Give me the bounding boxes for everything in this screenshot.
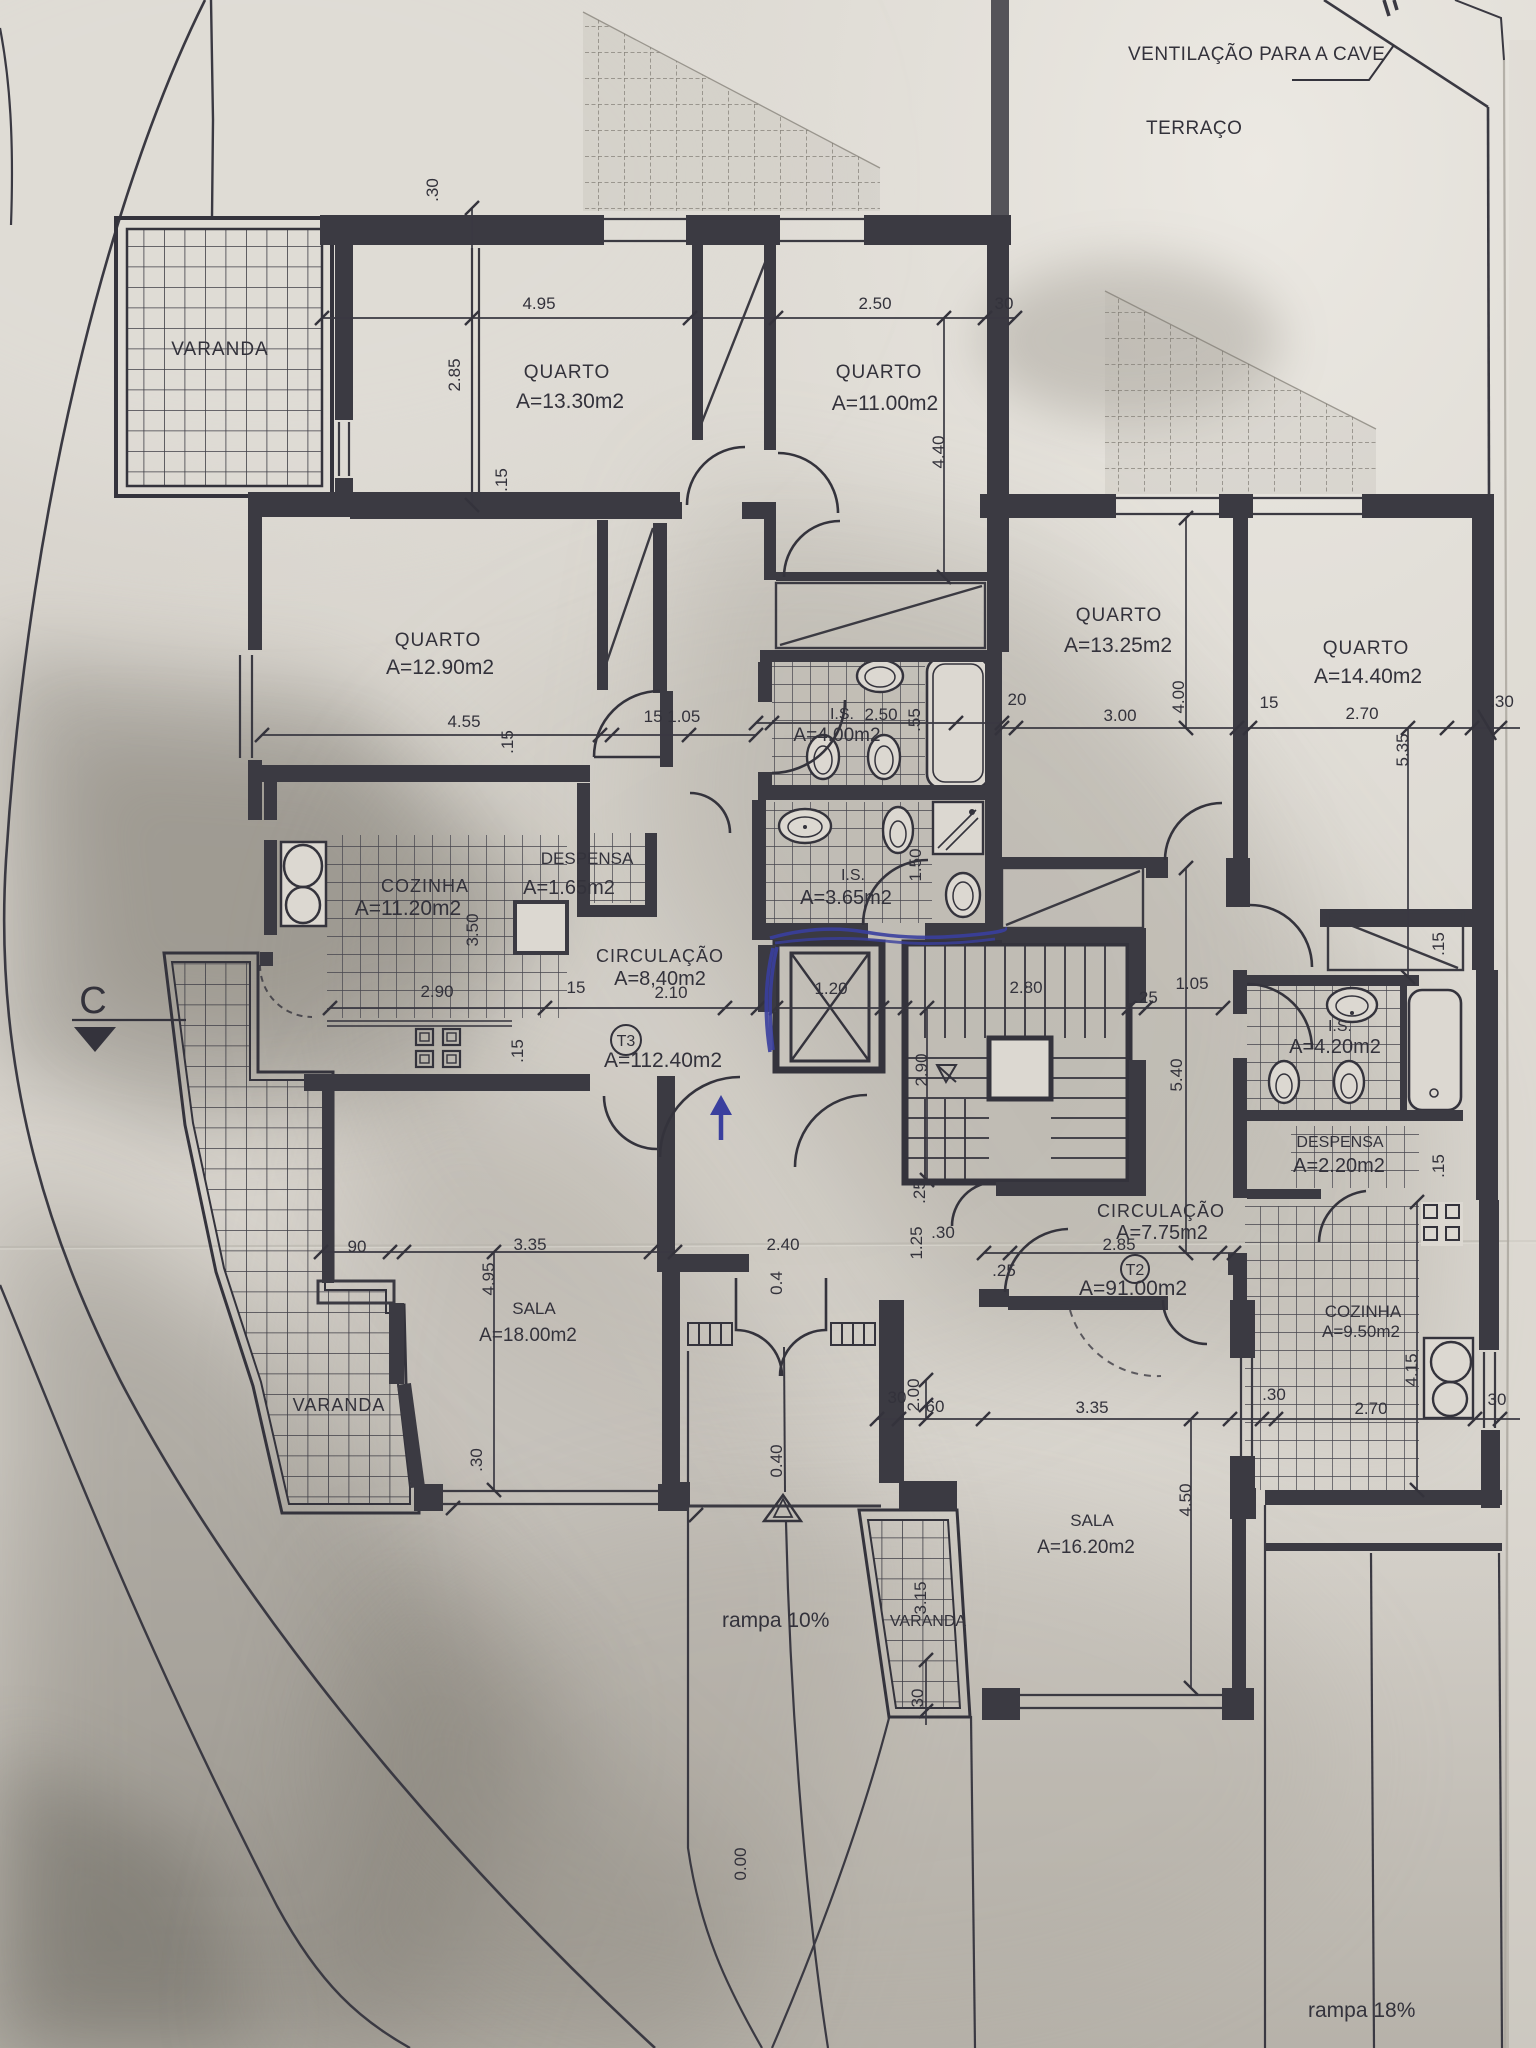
svg-text:2.40: 2.40 (766, 1235, 799, 1254)
svg-text:A=4.00m2: A=4.00m2 (793, 725, 880, 746)
svg-text:3.35: 3.35 (513, 1235, 546, 1254)
svg-text:0.00: 0.00 (731, 1847, 750, 1880)
svg-text:VARANDA: VARANDA (171, 339, 268, 360)
svg-text:I.S.: I.S. (830, 706, 854, 723)
svg-text:4.95: 4.95 (479, 1262, 498, 1295)
svg-text:20: 20 (1008, 690, 1027, 709)
svg-text:4.15: 4.15 (1402, 1353, 1421, 1386)
svg-text:1.25: 1.25 (907, 1226, 926, 1259)
svg-text:A=11.00m2: A=11.00m2 (832, 392, 938, 415)
svg-text:VARANDA: VARANDA (890, 1613, 966, 1630)
svg-text:.30: .30 (1262, 1385, 1286, 1404)
svg-text:3.35: 3.35 (1075, 1398, 1108, 1417)
svg-text:A=9.50m2: A=9.50m2 (1322, 1322, 1400, 1341)
svg-text:4.55: 4.55 (447, 712, 480, 731)
svg-text:15: 15 (567, 978, 586, 997)
svg-text:4.00: 4.00 (1169, 680, 1188, 713)
svg-text:.30: .30 (467, 1448, 486, 1472)
svg-text:DESPENSA: DESPENSA (541, 849, 634, 868)
svg-text:5.35: 5.35 (1393, 733, 1412, 766)
svg-text:15: 15 (1260, 693, 1279, 712)
svg-text:A=11.20m2: A=11.20m2 (355, 897, 461, 920)
svg-text:VENTILAÇÃO PARA A CAVE: VENTILAÇÃO PARA A CAVE (1128, 43, 1385, 65)
svg-text:1.05: 1.05 (1175, 974, 1208, 993)
svg-text:DESPENSA: DESPENSA (1296, 1134, 1383, 1151)
svg-text:.25: .25 (992, 1261, 1016, 1280)
svg-text:.15: .15 (492, 468, 511, 492)
svg-text:2.80: 2.80 (1009, 978, 1042, 997)
svg-text:1.50: 1.50 (906, 848, 925, 881)
svg-text:60: 60 (926, 1397, 945, 1416)
svg-text:C: C (79, 980, 106, 1022)
svg-text:QUARTO: QUARTO (1323, 638, 1410, 659)
svg-text:3.15: 3.15 (911, 1581, 930, 1614)
svg-text:2.85: 2.85 (445, 358, 464, 391)
svg-text:CIRCULAÇÃO: CIRCULAÇÃO (596, 945, 724, 966)
svg-text:T3: T3 (617, 1033, 636, 1050)
svg-text:A=18.00m2: A=18.00m2 (479, 1325, 577, 1346)
svg-text:2.70: 2.70 (1354, 1399, 1387, 1418)
svg-text:.15: .15 (1429, 1154, 1448, 1178)
svg-text:rampa 18%: rampa 18% (1308, 1999, 1415, 2022)
svg-text:A=91.00m2: A=91.00m2 (1079, 1277, 1187, 1300)
svg-text:TERRAÇO: TERRAÇO (1146, 118, 1242, 139)
svg-text:.30: .30 (931, 1223, 955, 1242)
svg-text:QUARTO: QUARTO (524, 362, 611, 383)
svg-text:QUARTO: QUARTO (395, 630, 482, 651)
svg-text:15 1.05: 15 1.05 (644, 707, 701, 726)
svg-text:A=112.40m2: A=112.40m2 (604, 1049, 722, 1072)
svg-text:4.40: 4.40 (929, 435, 948, 468)
svg-text:2.85: 2.85 (1102, 1235, 1135, 1254)
svg-text:I.S.: I.S. (841, 867, 865, 884)
svg-text:1.20: 1.20 (814, 979, 847, 998)
svg-text:.15: .15 (508, 1039, 527, 1063)
svg-text:QUARTO: QUARTO (836, 362, 923, 383)
svg-text:5.40: 5.40 (1167, 1058, 1186, 1091)
svg-text:A=4.20m2: A=4.20m2 (1289, 1036, 1381, 1058)
svg-text:VARANDA: VARANDA (293, 1395, 386, 1415)
svg-text:30: 30 (995, 294, 1014, 313)
svg-text:rampa 10%: rampa 10% (722, 1609, 829, 1632)
svg-text:.30: .30 (423, 178, 442, 202)
svg-text:A=12.90m2: A=12.90m2 (386, 656, 494, 679)
svg-text:0.4: 0.4 (767, 1271, 786, 1295)
svg-text:30: 30 (1488, 1390, 1507, 1409)
svg-text:2.10: 2.10 (654, 983, 687, 1002)
svg-text:A=13.25m2: A=13.25m2 (1064, 634, 1172, 657)
svg-text:.15: .15 (498, 730, 517, 754)
svg-text:2.70: 2.70 (1345, 704, 1378, 723)
svg-text:A=14.40m2: A=14.40m2 (1314, 665, 1422, 688)
svg-text:A=3.65m2: A=3.65m2 (800, 887, 892, 909)
svg-text:A=1.65m2: A=1.65m2 (523, 877, 615, 899)
svg-text:3.50: 3.50 (463, 913, 482, 946)
svg-text:30: 30 (908, 1689, 927, 1708)
svg-text:CIRCULAÇÃO: CIRCULAÇÃO (1097, 1200, 1225, 1221)
svg-text:3.00: 3.00 (1103, 706, 1136, 725)
svg-text:.55: .55 (905, 708, 924, 732)
svg-text:SALA: SALA (512, 1299, 556, 1318)
svg-text:SALA: SALA (1070, 1511, 1114, 1530)
svg-text:2.00: 2.00 (904, 1378, 923, 1411)
svg-text:QUARTO: QUARTO (1076, 605, 1163, 626)
svg-text:.25: .25 (910, 1180, 929, 1204)
svg-text:A=13.30m2: A=13.30m2 (516, 390, 624, 413)
svg-text:A=2.20m2: A=2.20m2 (1293, 1155, 1385, 1177)
svg-text:0.40: 0.40 (767, 1444, 786, 1477)
svg-text:COZINHA: COZINHA (1325, 1302, 1402, 1321)
svg-text:2.50: 2.50 (864, 705, 897, 724)
svg-text:2.50: 2.50 (858, 294, 891, 313)
svg-text:COZINHA: COZINHA (381, 876, 469, 896)
svg-text:.25: .25 (1134, 988, 1158, 1007)
svg-text:A=16.20m2: A=16.20m2 (1037, 1537, 1135, 1558)
svg-text:2.90: 2.90 (420, 982, 453, 1001)
svg-text:I.S.: I.S. (1328, 1018, 1352, 1035)
svg-text:2.90: 2.90 (912, 1053, 931, 1086)
svg-text:90: 90 (348, 1237, 367, 1256)
svg-text:.30: .30 (1490, 692, 1514, 711)
svg-text:4.50: 4.50 (1176, 1483, 1195, 1516)
svg-text:4.95: 4.95 (522, 294, 555, 313)
svg-text:.15: .15 (1429, 932, 1448, 956)
